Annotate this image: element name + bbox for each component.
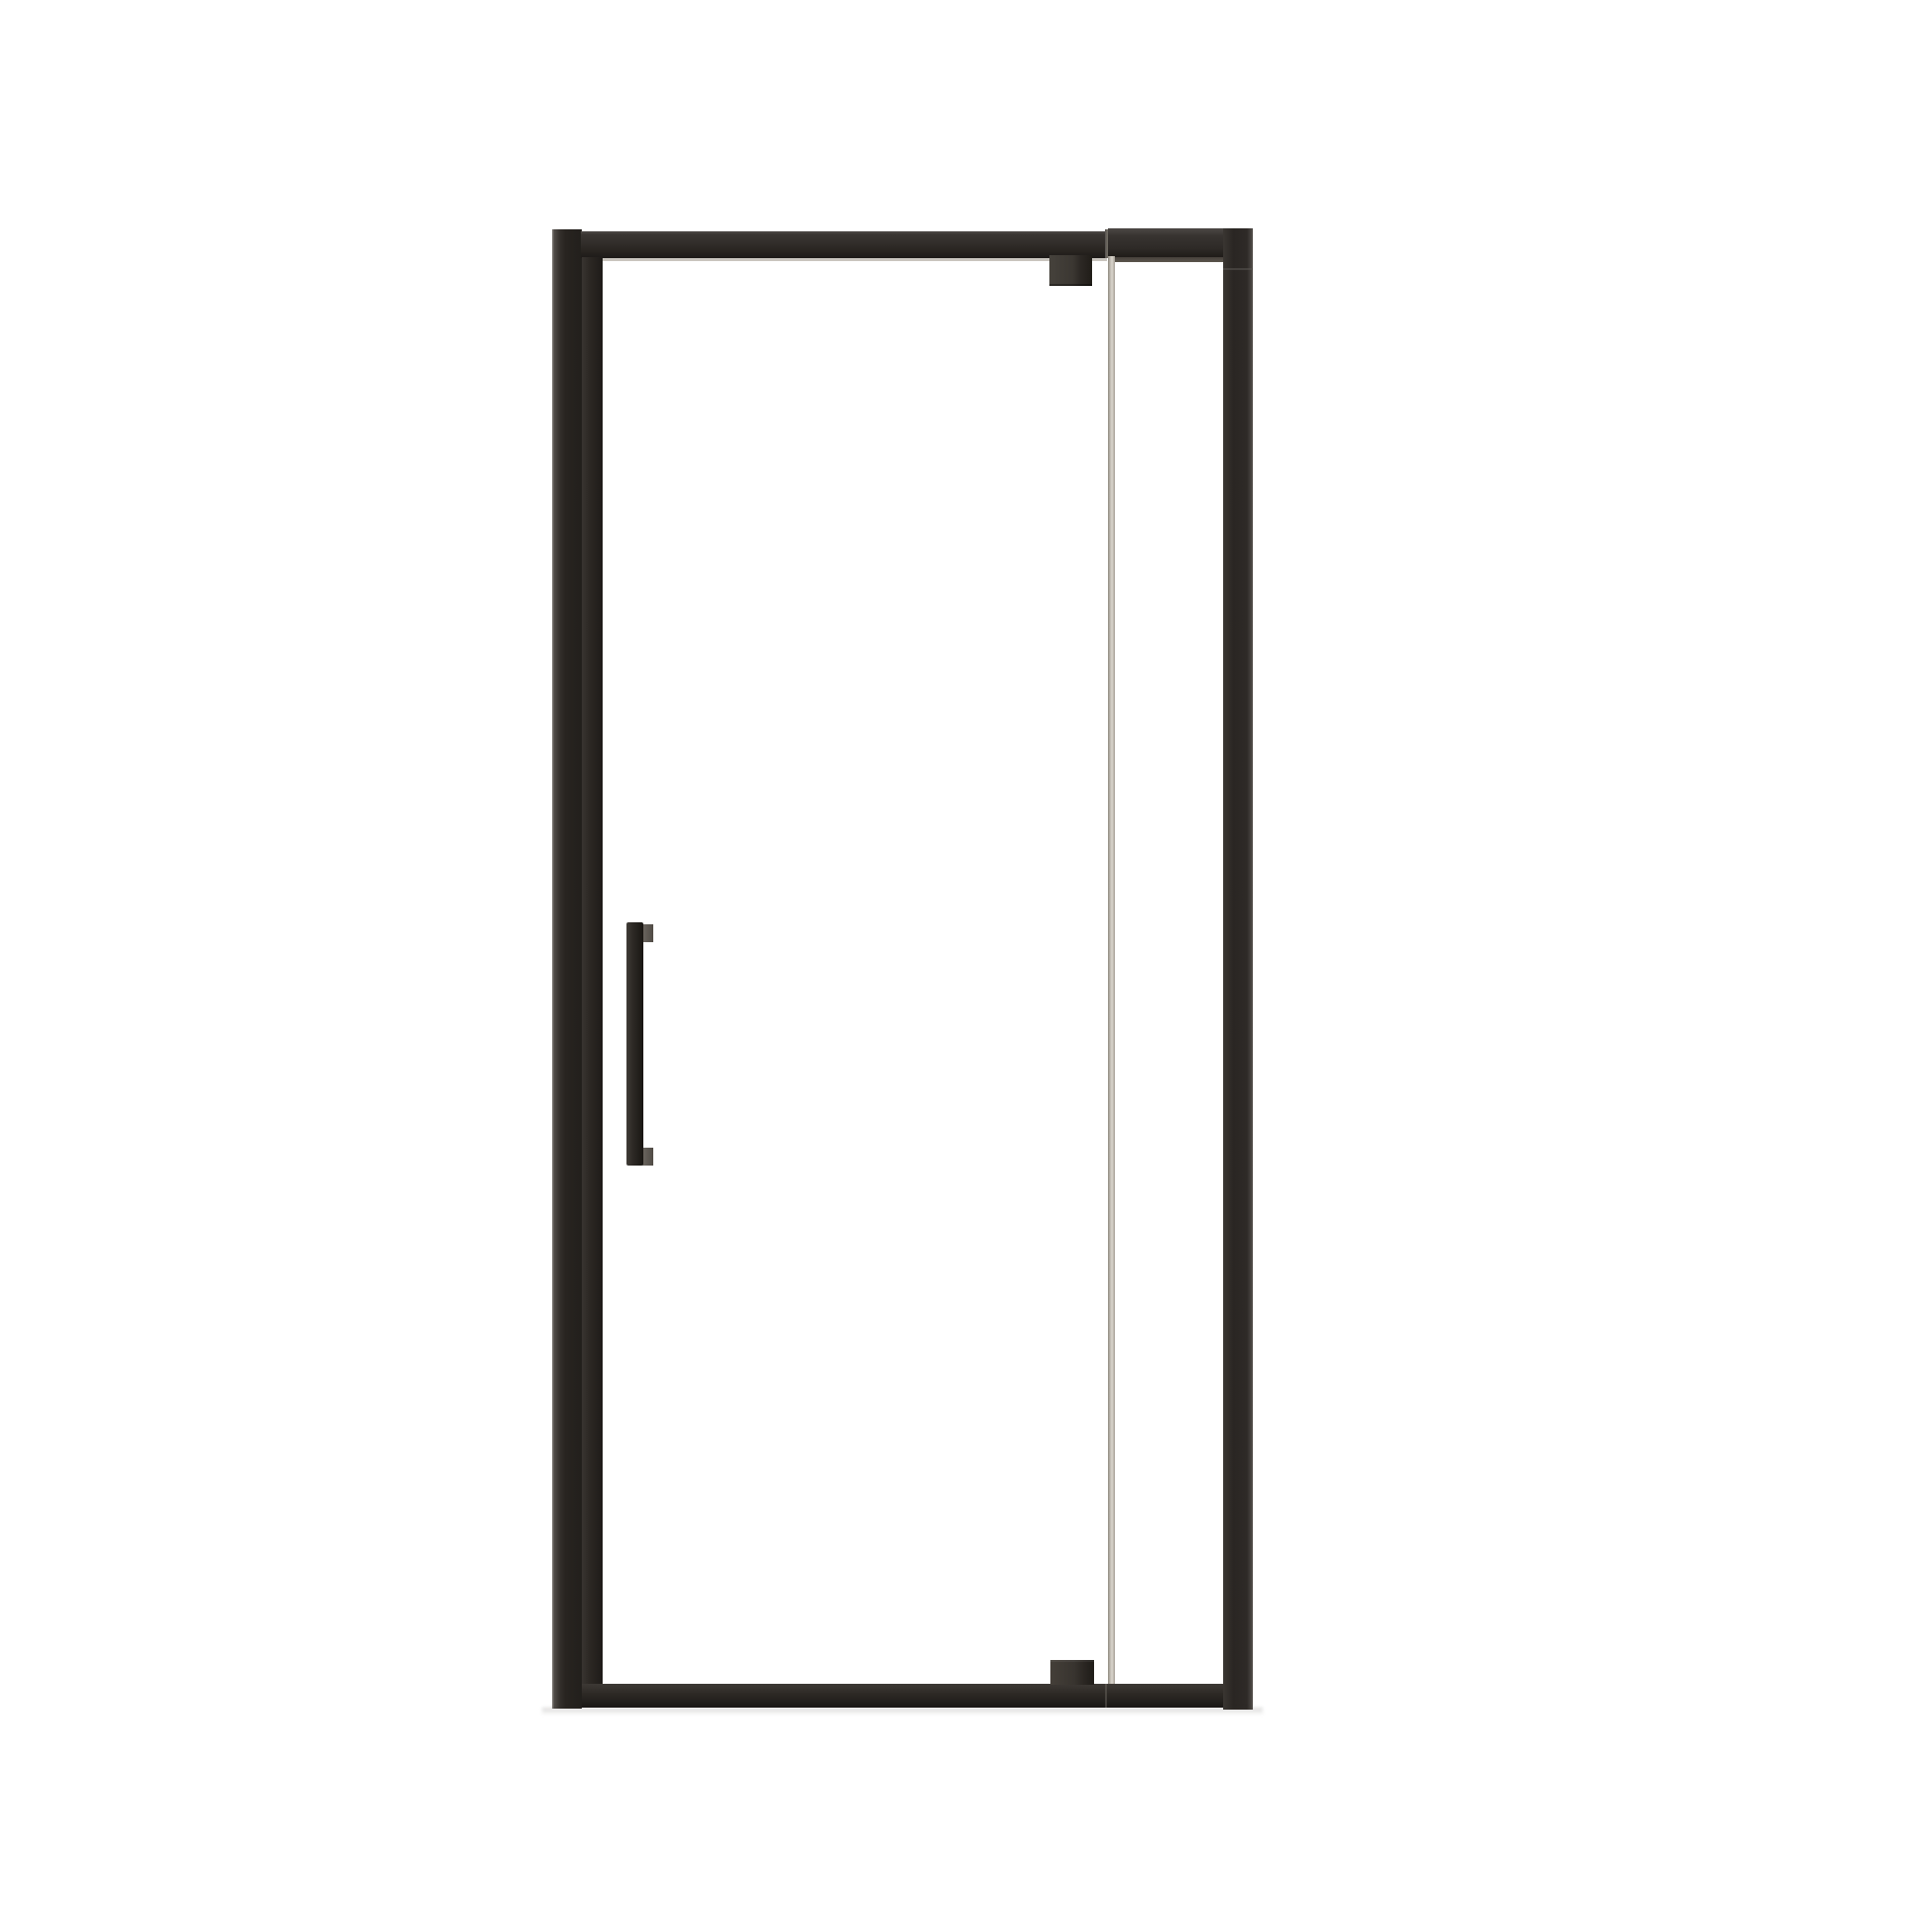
top-rail-seam: [1105, 229, 1108, 258]
top-rail-panel-section: [1108, 228, 1224, 257]
glass-top-highlight: [603, 258, 1107, 261]
bottom-pivot-hinge: [1050, 1660, 1094, 1685]
top-pivot-hinge: [1049, 255, 1092, 286]
handle-mount-top-icon: [642, 924, 653, 942]
bottom-rail: [582, 1684, 1223, 1708]
door-glass: [603, 261, 1108, 1912]
bottom-rail-seam: [1105, 1684, 1107, 1708]
door-stile: [582, 257, 603, 1687]
floor-shadow: [542, 1708, 1263, 1716]
glass-edge-strip: [1108, 256, 1115, 1684]
door-handle: [626, 922, 643, 1166]
right-wall-profile: [1223, 228, 1253, 1710]
fixed-panel-glass: [1115, 262, 1223, 1910]
top-rail-door-section: [581, 231, 1107, 258]
handle-mount-bottom-icon: [642, 1148, 653, 1166]
right-profile-seam: [1223, 268, 1253, 270]
product-photo: [0, 0, 1932, 1932]
left-wall-profile: [552, 229, 582, 1709]
panel-shadow-band: [1115, 257, 1223, 262]
shower-door-unit: [552, 228, 1254, 1714]
